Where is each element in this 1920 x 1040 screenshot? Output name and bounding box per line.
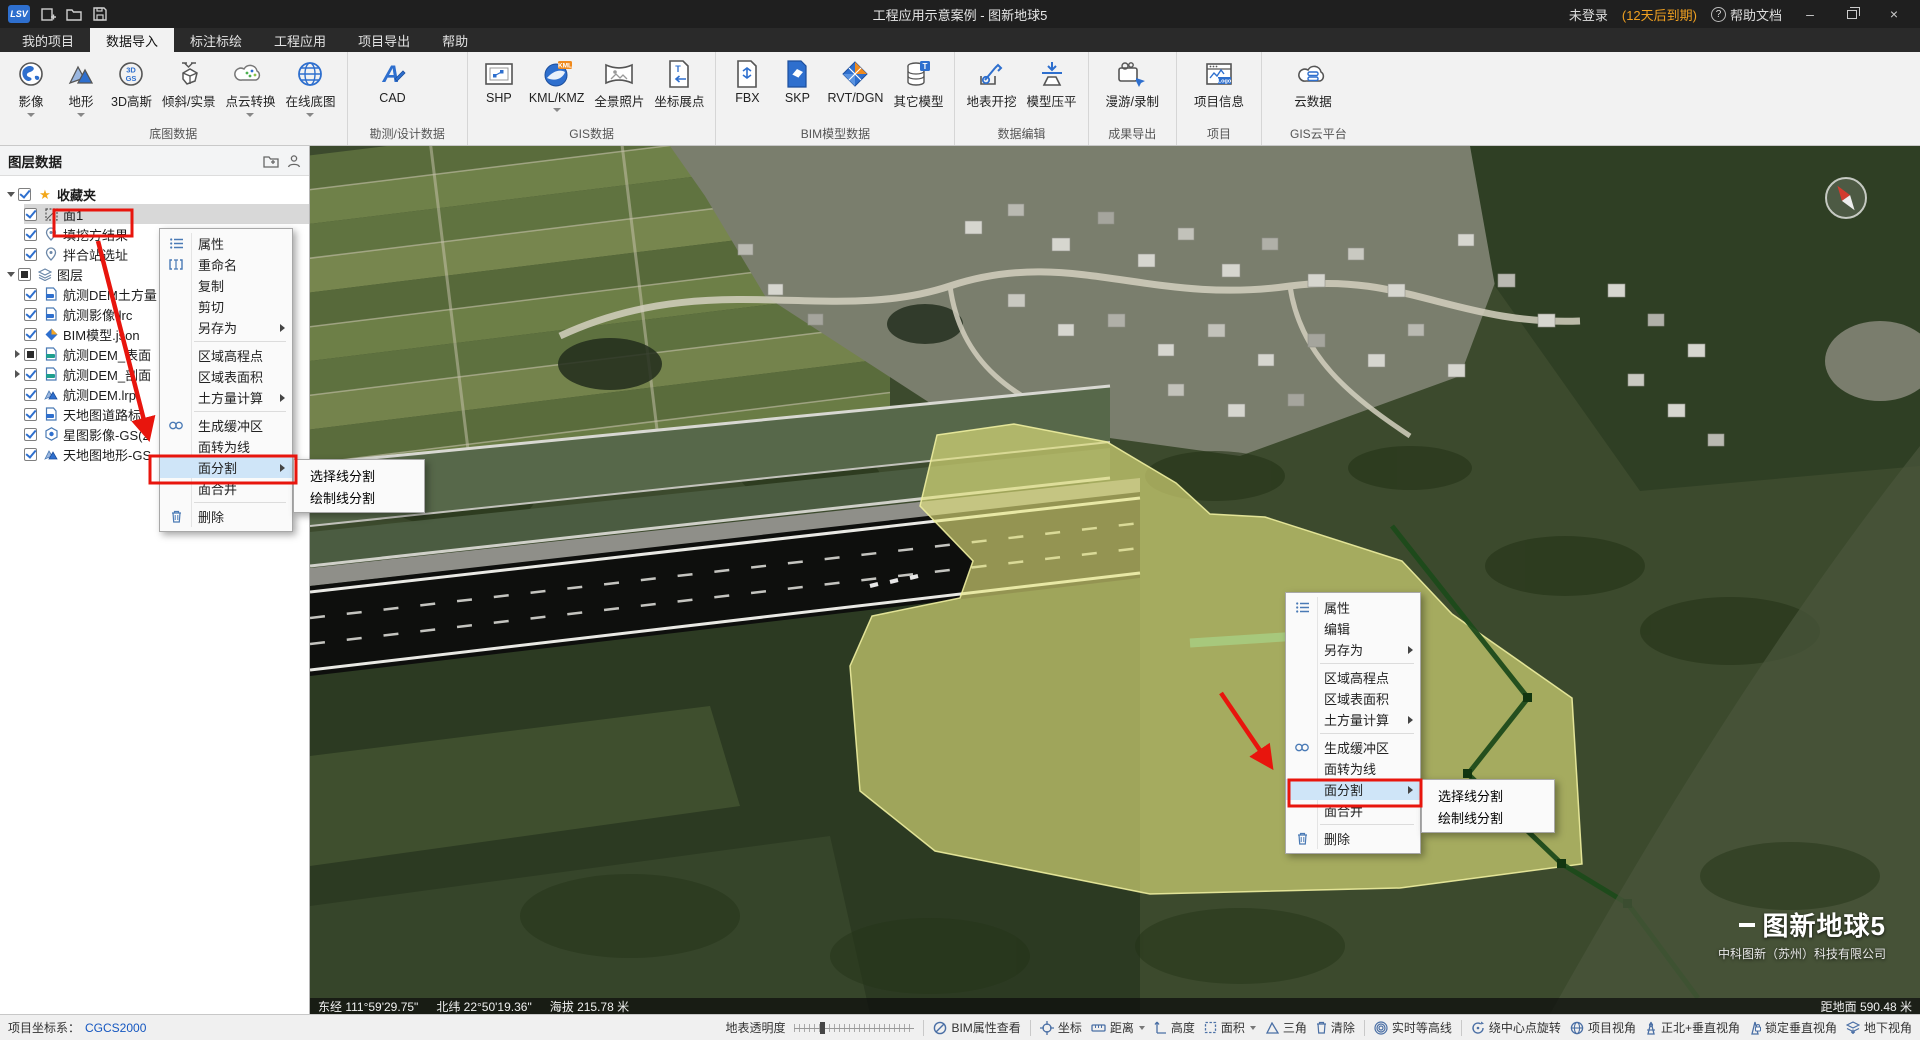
tab-help[interactable]: 帮助 [426,28,484,52]
shp-button[interactable]: SHP [476,56,522,114]
tab-my-project[interactable]: 我的项目 [6,28,90,52]
slider-thumb[interactable] [820,1022,825,1034]
map-coordinates-bar: 东经 111°59'29.75" 北纬 22°50'19.36" 海拔 215.… [310,998,1920,1014]
3dgs-icon: 3DGS [115,58,147,90]
title-bar: LSV 工程应用示意案例 - 图新地球5 未登录 (12天后到期) ?帮助文档 … [0,0,1920,28]
watermark: 图新地球5 中科图新（苏州）科技有限公司 [1718,906,1886,962]
ribbon-group-bim: FBX SKP RVT/DGN T 其它模型 BIM模型数据 [716,52,955,145]
tab-project-export[interactable]: 项目导出 [342,28,426,52]
map-3d-view[interactable]: 图新地球5 中科图新（苏州）科技有限公司 东经 111°59'29.75" 北纬… [310,146,1920,1014]
menu-tab-bar: 我的项目 数据导入 标注标绘 工程应用 项目导出 帮助 [0,28,1920,52]
menu-separator [194,502,286,503]
menu-separator [1320,663,1414,664]
chevron-down-icon [1139,1026,1145,1030]
doc-icon [43,287,59,301]
terrain-icon [43,447,59,461]
submenu-arrow-icon [1408,716,1413,724]
menu-item-face-split[interactable]: 面分割 [160,457,292,478]
terrain-icon [43,387,59,401]
chevron-down-icon [1250,1026,1256,1030]
altitude-readout: 海拔 215.78 米 [550,998,629,1015]
map-context-menu: 属性 编辑 另存为 区域高程点 区域表面积 土方量计算 生成缓冲区 面转为线 面… [1285,592,1421,854]
buffer-icon [1286,743,1318,752]
folder-plus-icon[interactable] [263,154,279,168]
watermark-dash [1739,923,1755,927]
kml-kmz-button[interactable]: KML KML/KMZ [526,56,588,114]
person-icon[interactable] [287,154,301,168]
roam-record-button[interactable]: 漫游/录制 [1103,56,1162,119]
submenu-item-select-line-split[interactable]: 选择线分割 [294,464,424,486]
submenu-arrow-icon [1408,646,1413,654]
menu-item-rename[interactable]: 重命名 [160,254,292,275]
svg-text:GS: GS [126,74,137,83]
submenu-item-draw-line-split[interactable]: 绘制线分割 [294,486,424,508]
ribbon-group-label: 项目 [1191,124,1247,145]
polygon-icon [43,207,59,221]
checkbox[interactable] [24,448,37,461]
longitude-readout: 东经 111°59'29.75" [318,998,418,1015]
fbx-button[interactable]: FBX [724,56,770,114]
compass-icon[interactable] [1826,178,1866,218]
expander-open-icon[interactable] [4,272,18,277]
checkbox-partial[interactable] [24,348,37,361]
skp-doc-icon [781,58,813,90]
rvt-dgn-button[interactable]: RVT/DGN [824,56,886,114]
face-split-submenu: 选择线分割 绘制线分割 [293,459,425,513]
watermark-company: 中科图新（苏州）科技有限公司 [1718,945,1886,962]
menu-item-generate-buffer[interactable]: 生成缓冲区 [160,415,292,436]
expander-closed-icon[interactable] [10,370,24,378]
realtime-contours-button[interactable]: 实时等高线 [1374,1019,1452,1036]
layer-context-menu: 属性 重命名 复制 剪切 另存为 区域高程点 区域表面积 土方量计算 生成缓冲区… [159,228,293,532]
ribbon-group-gis-cloud: 云数据 GIS云平台 [1262,52,1375,145]
menu-item-face-split[interactable]: 面分割 [1286,779,1420,800]
properties-list-icon [160,238,192,249]
close-button[interactable]: × [1880,6,1908,22]
menu-item-copy[interactable]: 复制 [160,275,292,296]
menu-separator [194,341,286,342]
menu-item-cut[interactable]: 剪切 [160,296,292,317]
trash-icon [1286,832,1318,845]
submenu-arrow-icon [1408,786,1413,794]
doc-icon [43,407,59,421]
bim-attribute-button[interactable]: BIM属性查看 [933,1019,1020,1036]
menu-item-region-elevation[interactable]: 区域高程点 [1286,667,1420,688]
menu-item-generate-buffer[interactable]: 生成缓冲区 [1286,737,1420,758]
checkbox[interactable] [24,288,37,301]
menu-item-region-area[interactable]: 区域表面积 [1286,688,1420,709]
chevron-down-icon [246,113,254,117]
ribbon-group-basemap: 影像 地形 3DGS 3D高斯 倾斜/实景 点云转换 在线底图 [0,52,348,145]
minimize-button[interactable]: – [1796,6,1824,22]
menu-item-face-merge[interactable]: 面合并 [160,478,292,499]
submenu-item-draw-line-split[interactable]: 绘制线分割 [1422,806,1554,828]
rotate-around-center-button[interactable]: 绕中心点旋转 [1471,1019,1561,1036]
height-tool-button[interactable]: 高度 [1154,1019,1195,1036]
menu-item-save-as[interactable]: 另存为 [160,317,292,338]
ribbon-group-label: GIS云平台 [1290,124,1347,145]
checkbox[interactable] [18,188,31,201]
globe-hex-icon [43,427,59,441]
chevron-down-icon [77,113,85,117]
imagery-globe-icon [15,58,47,90]
tree-item-favorites[interactable]: ★ 收藏夹 [4,184,309,204]
cloud-data-button[interactable]: 云数据 [1290,56,1336,119]
ribbon-group-label: GIS数据 [476,124,708,145]
svg-text:KML: KML [558,62,572,69]
ribbon-group-data-edit: 地表开挖 模型压平 数据编辑 [955,52,1088,145]
menu-item-properties[interactable]: 属性 [1286,597,1420,618]
properties-list-icon [1286,602,1318,613]
checkbox[interactable] [24,308,37,321]
layer-panel-header: 图层数据 [0,146,309,176]
app-logo-icon: LSV [8,5,30,23]
submenu-arrow-icon [280,464,285,472]
model-flatten-button[interactable]: 模型压平 [1024,56,1080,119]
expander-closed-icon[interactable] [10,350,24,358]
submenu-arrow-icon [280,394,285,402]
checkbox[interactable] [24,248,37,261]
camera-plane-icon [1116,58,1148,90]
menu-item-face-merge[interactable]: 面合并 [1286,800,1420,821]
flatten-icon [1036,58,1068,90]
menu-item-earthwork-calc[interactable]: 土方量计算 [160,387,292,408]
checkbox[interactable] [24,428,37,441]
menu-separator [1320,733,1414,734]
svg-text:T: T [676,64,682,74]
save-icon[interactable] [92,6,108,22]
chevron-down-icon [306,113,314,117]
menu-item-face-to-line[interactable]: 面转为线 [160,436,292,457]
expander-open-icon[interactable] [4,192,18,197]
imagery-button[interactable]: 影像 [8,56,54,119]
tab-engineering[interactable]: 工程应用 [258,28,342,52]
cad-icon: A [377,58,409,90]
new-project-icon[interactable] [40,6,56,22]
menu-item-delete[interactable]: 删除 [1286,828,1420,849]
rvt-diamond-icon [839,58,871,90]
terrain-icon [65,58,97,90]
menu-item-face-to-line[interactable]: 面转为线 [1286,758,1420,779]
triangle-tool-button[interactable]: 三角 [1265,1019,1307,1036]
shp-icon [483,58,515,90]
tree-item-face1[interactable]: 面1 [24,204,309,224]
panorama-button[interactable]: 全景照片 [591,56,647,119]
distance-tool-button[interactable]: 距离 [1091,1019,1145,1036]
transparency-slider[interactable] [794,1022,914,1034]
point-cloud-icon [234,58,266,90]
doc-icon [43,347,59,361]
cad-button[interactable]: A CAD [370,56,416,114]
svg-text:A: A [381,61,399,88]
oblique-photography-button[interactable]: 倾斜/实景 [159,56,218,119]
svg-text:T: T [923,62,928,71]
checkbox[interactable] [24,208,37,221]
skp-button[interactable]: SKP [774,56,820,114]
tab-annotation[interactable]: 标注标绘 [174,28,258,52]
ground-distance-readout: 距地面 590.48 米 [1821,998,1912,1015]
submenu-arrow-icon [280,324,285,332]
menu-item-delete[interactable]: 删除 [160,506,292,527]
rename-icon [160,259,192,270]
login-status[interactable]: 未登录 [1569,5,1608,24]
checkbox[interactable] [24,368,37,381]
aerial-imagery [310,146,1920,1014]
status-bar: 项目坐标系：CGCS2000 地表透明度 BIM属性查看 坐标 距离 高度 面积… [0,1014,1920,1040]
surface-excavation-button[interactable]: 地表开挖 [963,56,1019,119]
area-tool-button[interactable]: 面积 [1204,1019,1256,1036]
ribbon-group-label: 勘测/设计数据 [370,124,445,145]
menu-item-properties[interactable]: 属性 [160,233,292,254]
trash-icon [160,510,192,523]
cloud-data-icon [1297,58,1329,90]
location-pin-icon [43,247,59,261]
menu-separator [194,411,286,412]
chevron-down-icon [553,108,561,112]
menu-item-save-as[interactable]: 另存为 [1286,639,1420,660]
checkbox-partial[interactable] [18,268,31,281]
latitude-readout: 北纬 22°50'19.36" [436,998,531,1015]
fbx-doc-icon [731,58,763,90]
doc-icon [43,307,59,321]
doc-icon [43,367,59,381]
menu-item-region-area[interactable]: 区域表面积 [160,366,292,387]
ribbon-group-label: BIM模型数据 [724,124,946,145]
buffer-icon [160,421,192,430]
checkbox[interactable] [24,328,37,341]
north-vertical-view-button[interactable]: 正北+垂直视角 [1645,1019,1740,1036]
shovel-icon [975,58,1007,90]
panorama-icon [603,58,635,90]
layer-panel-title: 图层数据 [8,151,62,171]
terrain-button[interactable]: 地形 [58,56,104,119]
ribbon-group-label: 底图数据 [8,124,339,145]
model-diamond-icon [43,327,59,341]
svg-text:Logo: Logo [1218,79,1232,85]
chevron-down-icon [27,113,35,117]
ribbon-group-gis: SHP KML KML/KMZ 全景照片 T 坐标展点 GIS数据 [468,52,717,145]
license-expiry: (12天后到期) [1622,5,1697,24]
open-folder-icon[interactable] [66,6,82,22]
menu-item-edit[interactable]: 编辑 [1286,618,1420,639]
3d-gaussian-button[interactable]: 3DGS 3D高斯 [108,56,155,119]
other-models-button[interactable]: T 其它模型 [890,56,946,119]
location-pin-icon [43,227,59,241]
project-view-button[interactable]: 项目视角 [1570,1019,1636,1036]
drone-cube-icon [173,58,205,90]
ribbon-group-survey: A CAD 勘测/设计数据 [348,52,468,145]
question-icon: ? [1711,7,1726,22]
tab-data-import[interactable]: 数据导入 [90,28,174,52]
crs-value[interactable]: CGCS2000 [85,1021,146,1035]
online-globe-icon [294,58,326,90]
project-info-icon: Logo [1203,58,1235,90]
other-model-icon: T [902,58,934,90]
kml-globe-icon: KML [541,58,573,90]
lock-vertical-view-button[interactable]: 锁定垂直视角 [1749,1019,1837,1036]
star-icon: ★ [37,187,53,201]
menu-item-earthwork-calc[interactable]: 土方量计算 [1286,709,1420,730]
coordinate-tool-button[interactable]: 坐标 [1040,1019,1082,1036]
checkbox[interactable] [24,228,37,241]
clear-button[interactable]: 清除 [1316,1019,1355,1036]
watermark-title: 图新地球5 [1763,906,1886,943]
layers-icon [37,267,53,281]
submenu-item-select-line-split[interactable]: 选择线分割 [1422,784,1554,806]
coordinate-points-button[interactable]: T 坐标展点 [651,56,707,119]
restore-button[interactable] [1838,6,1866,22]
project-info-button[interactable]: Logo 项目信息 [1191,56,1247,119]
pointcloud-convert-button[interactable]: 点云转换 [222,56,278,119]
face-split-submenu: 选择线分割 绘制线分割 [1421,779,1555,833]
online-basemap-button[interactable]: 在线底图 [282,56,338,119]
ribbon-group-export: 漫游/录制 成果导出 [1089,52,1177,145]
help-doc-button[interactable]: ?帮助文档 [1711,5,1782,24]
menu-separator [1320,824,1414,825]
underground-view-button[interactable]: 地下视角 [1846,1019,1912,1036]
ribbon: 影像 地形 3DGS 3D高斯 倾斜/实景 点云转换 在线底图 [0,52,1920,146]
ribbon-group-label: 数据编辑 [963,124,1079,145]
ribbon-group-project: Logo 项目信息 项目 [1177,52,1262,145]
crs-label: 项目坐标系： [8,1019,80,1036]
ribbon-group-label: 成果导出 [1103,124,1162,145]
transparency-label: 地表透明度 [725,1019,785,1036]
menu-item-region-elevation[interactable]: 区域高程点 [160,345,292,366]
checkbox[interactable] [24,408,37,421]
checkbox[interactable] [24,388,37,401]
coordinate-doc-icon: T [663,58,695,90]
